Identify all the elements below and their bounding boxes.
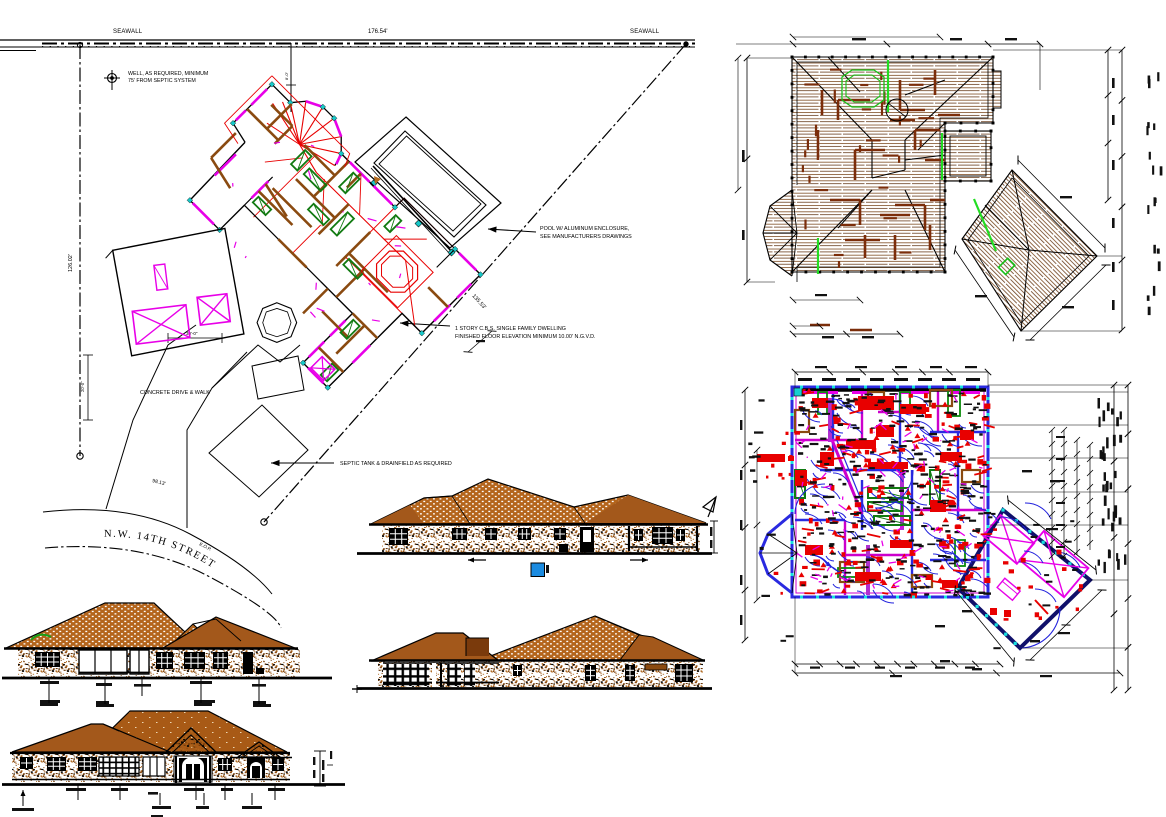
svg-text:CONCRETE DRIVE & WALK: CONCRETE DRIVE & WALK (140, 390, 210, 396)
svg-text:8'-0": 8'-0" (284, 71, 289, 80)
svg-text:SEAWALL: SEAWALL (113, 29, 143, 35)
svg-text:SEAWALL: SEAWALL (630, 29, 660, 35)
svg-text:20'-0": 20'-0" (80, 381, 85, 392)
svg-text:WELL, AS REQUIRED, MINIMUM: WELL, AS REQUIRED, MINIMUM (128, 71, 208, 77)
svg-text:30'-0": 30'-0" (186, 331, 198, 336)
svg-text:SEE MANUFACTURERS DRAWINGS: SEE MANUFACTURERS DRAWINGS (540, 234, 632, 240)
svg-text:SEPTIC TANK & DRAINFIELD AS RE: SEPTIC TANK & DRAINFIELD AS REQUIRED (340, 461, 452, 467)
svg-text:126.02': 126.02' (68, 254, 74, 272)
svg-text:POOL W/ ALUMINUM ENCLOSURE,: POOL W/ ALUMINUM ENCLOSURE, (540, 226, 630, 232)
svg-text:1 STORY C.B.S. SINGLE FAMILY D: 1 STORY C.B.S. SINGLE FAMILY DWELLING (455, 326, 566, 332)
svg-text:176.54': 176.54' (368, 29, 388, 35)
svg-text:75' FROM SEPTIC SYSTEM: 75' FROM SEPTIC SYSTEM (128, 78, 196, 84)
svg-text:FINISHED FLOOR ELEVATION MINIM: FINISHED FLOOR ELEVATION MINIMUM 10.00' … (455, 334, 596, 340)
